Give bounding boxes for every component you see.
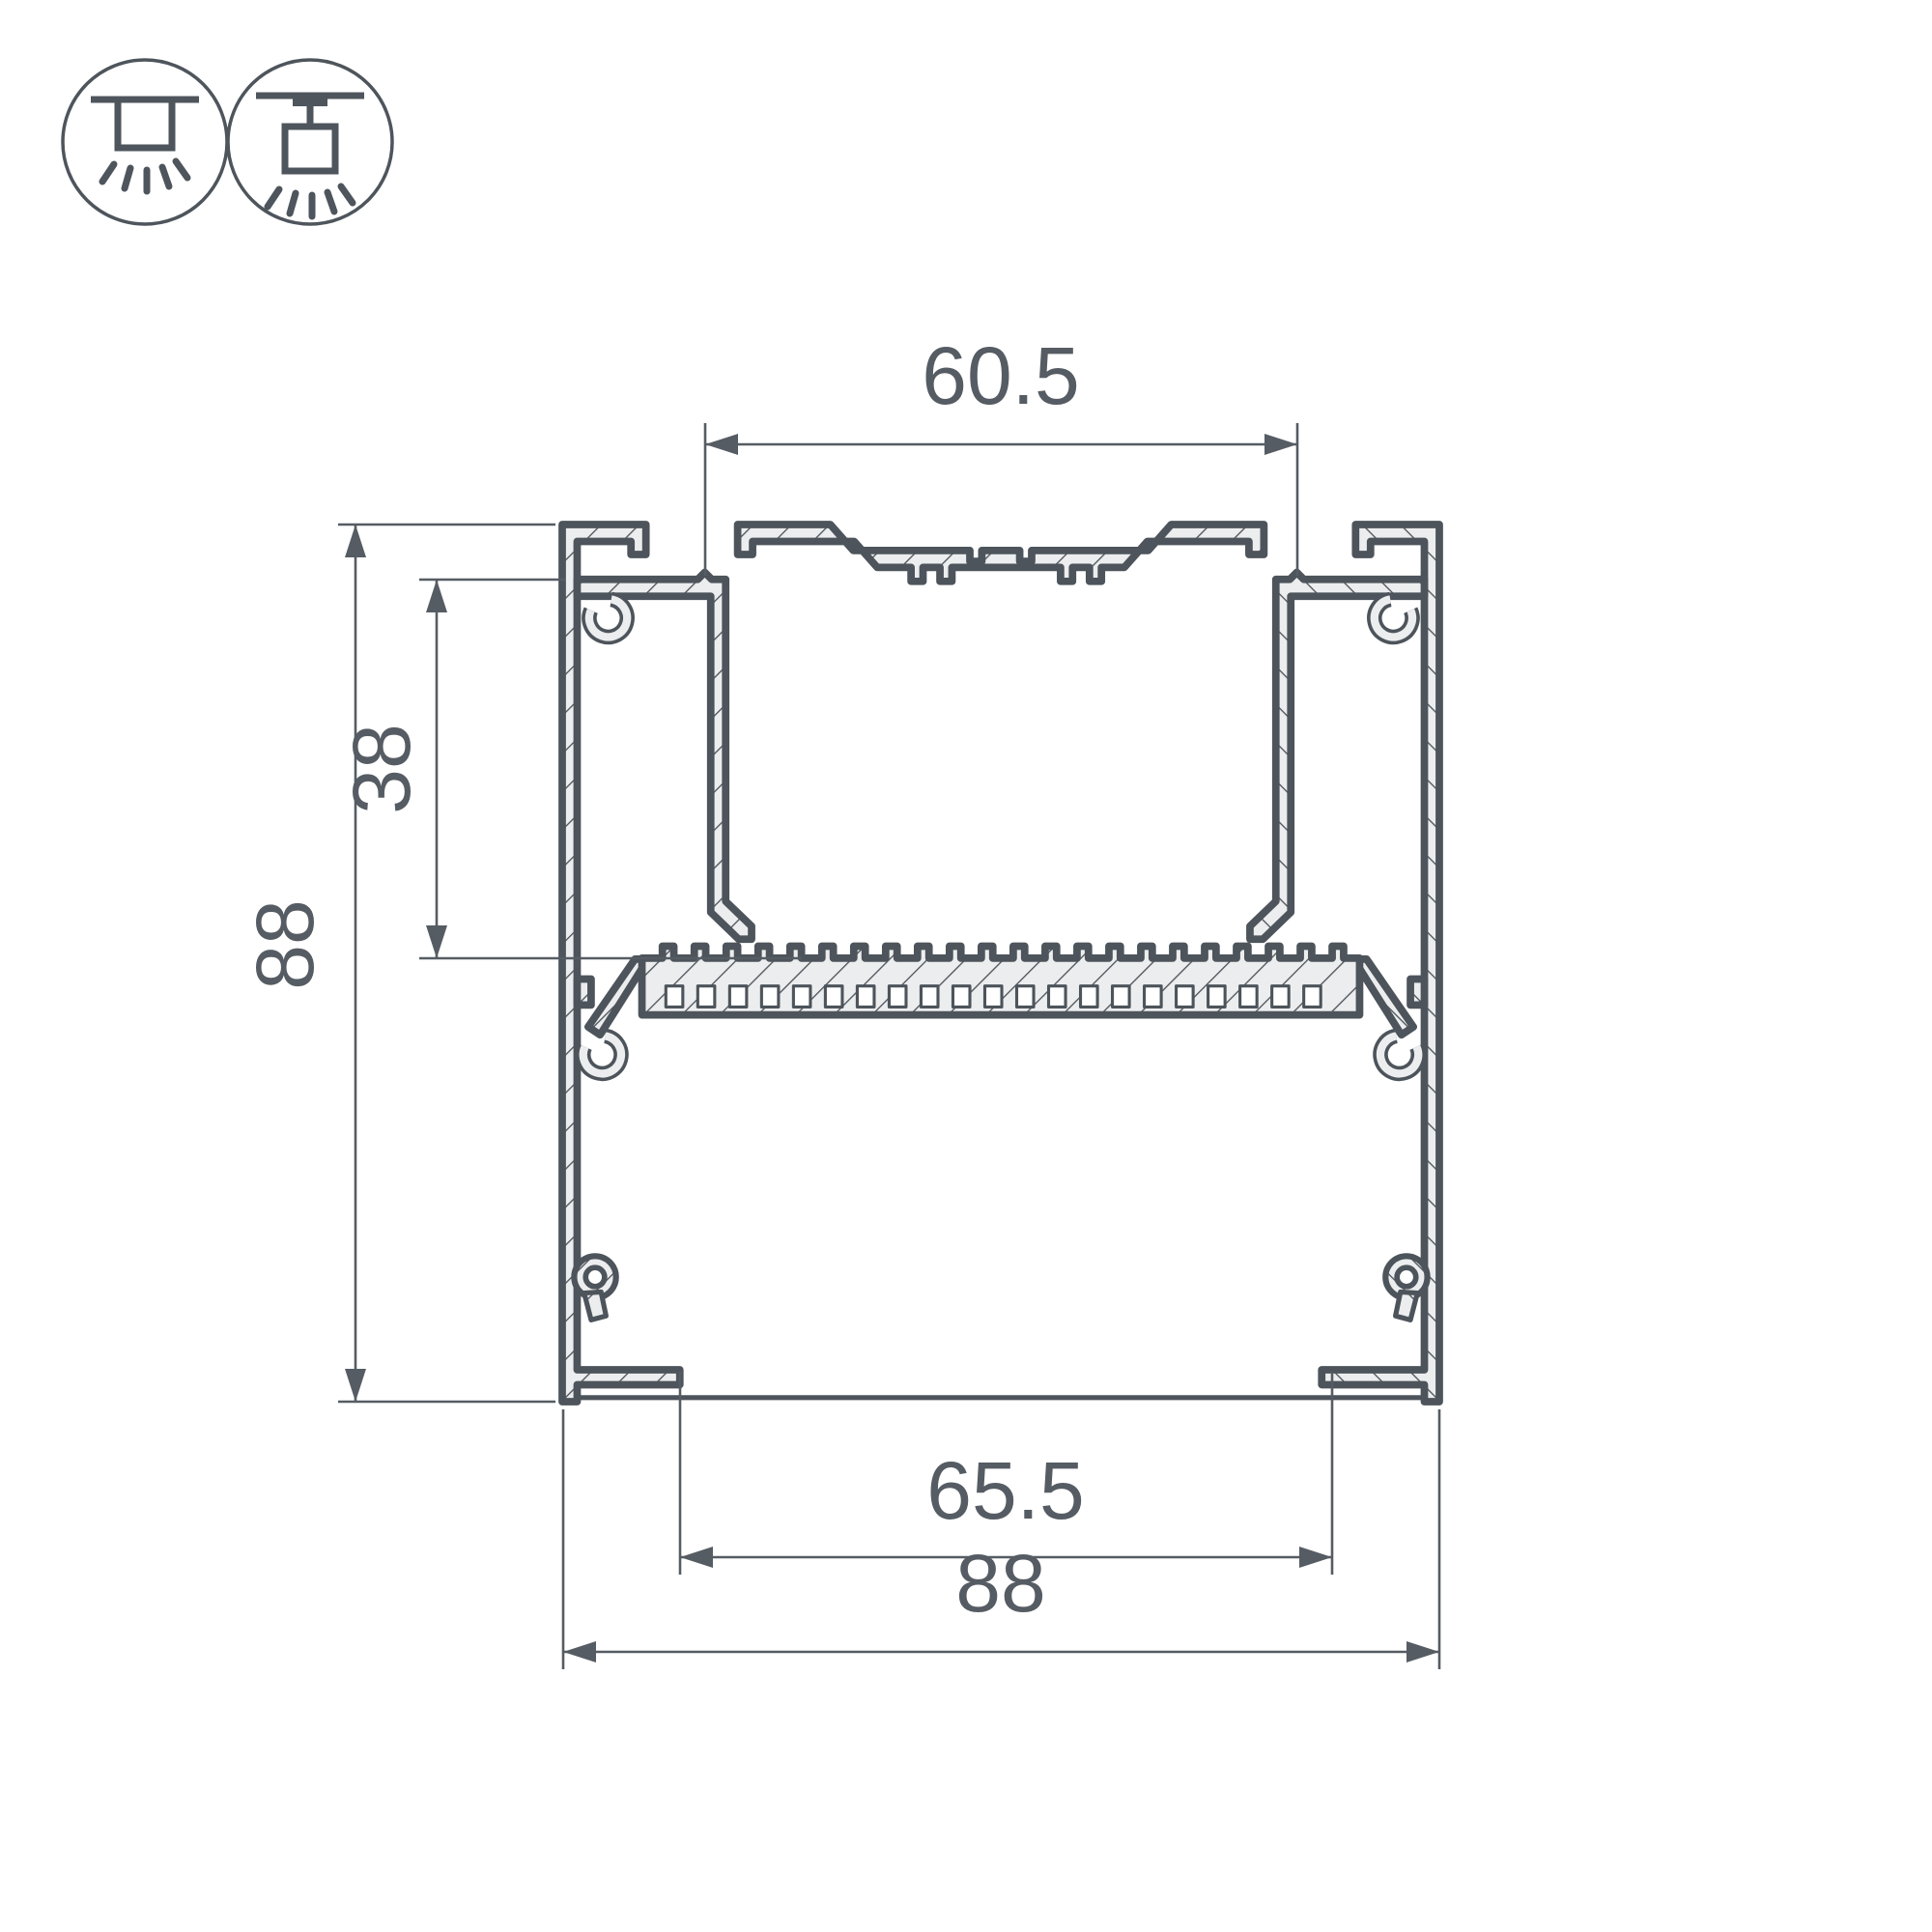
divider-slot <box>666 986 683 1008</box>
divider-slot <box>952 986 970 1008</box>
screw-boss-foot <box>584 1292 607 1320</box>
divider-slot <box>1177 986 1194 1008</box>
inner-channel-wall-left <box>577 573 752 940</box>
technical-drawing: 60.5 38 88 65.5 <box>0 0 1932 1932</box>
divider-slot <box>1113 986 1130 1008</box>
arrowhead <box>345 1369 366 1402</box>
divider-slot <box>1145 986 1162 1008</box>
arrowhead <box>426 580 447 612</box>
divider-slot <box>889 986 906 1008</box>
technical-drawing-page: 60.5 38 88 65.5 <box>0 0 1932 1932</box>
arrowhead <box>705 434 738 455</box>
divider-slot <box>984 986 1002 1008</box>
divider-slot <box>793 986 810 1008</box>
divider-slot <box>697 986 715 1008</box>
arrowhead <box>345 525 366 557</box>
divider-slot <box>1017 986 1035 1008</box>
divider-slot <box>857 986 874 1008</box>
arrowhead <box>1406 1641 1439 1662</box>
mount-icons <box>63 60 392 224</box>
divider-slot <box>1272 986 1290 1008</box>
dimension-label-bottom-opening: 65.5 <box>926 1445 1085 1536</box>
wall-stub <box>577 980 590 1006</box>
pendant-mount-icon <box>228 60 392 224</box>
dimension-label-overall-height: 88 <box>240 899 330 989</box>
divider-slot <box>1208 986 1226 1008</box>
dimension-label-top-width: 60.5 <box>922 330 1080 421</box>
divider-slot <box>825 986 842 1008</box>
heatsink-divider-slots <box>666 986 1321 1008</box>
profile-cross-section <box>562 525 1439 1402</box>
divider-slot <box>1049 986 1066 1008</box>
divider-slot <box>1240 986 1258 1008</box>
arrowhead <box>1299 1547 1332 1568</box>
arrowhead <box>680 1547 713 1568</box>
top-mounting-plate <box>738 525 1264 582</box>
divider-slot <box>729 986 747 1008</box>
arrowhead <box>426 925 447 958</box>
divider-slot <box>1304 986 1321 1008</box>
dimension-overall-height: 88 <box>240 525 555 1402</box>
divider-slot <box>921 986 938 1008</box>
dimension-label-inner-height: 38 <box>336 724 427 813</box>
dimension-label-overall-width: 88 <box>955 1538 1045 1629</box>
divider-slot <box>761 986 779 1008</box>
screw-boss-top-left <box>589 599 627 637</box>
arrowhead <box>1264 434 1297 455</box>
surface-mount-icon <box>63 60 227 224</box>
screw-boss-mid-left <box>583 1036 621 1073</box>
arrowhead <box>563 1641 596 1662</box>
divider-slot <box>1081 986 1098 1008</box>
